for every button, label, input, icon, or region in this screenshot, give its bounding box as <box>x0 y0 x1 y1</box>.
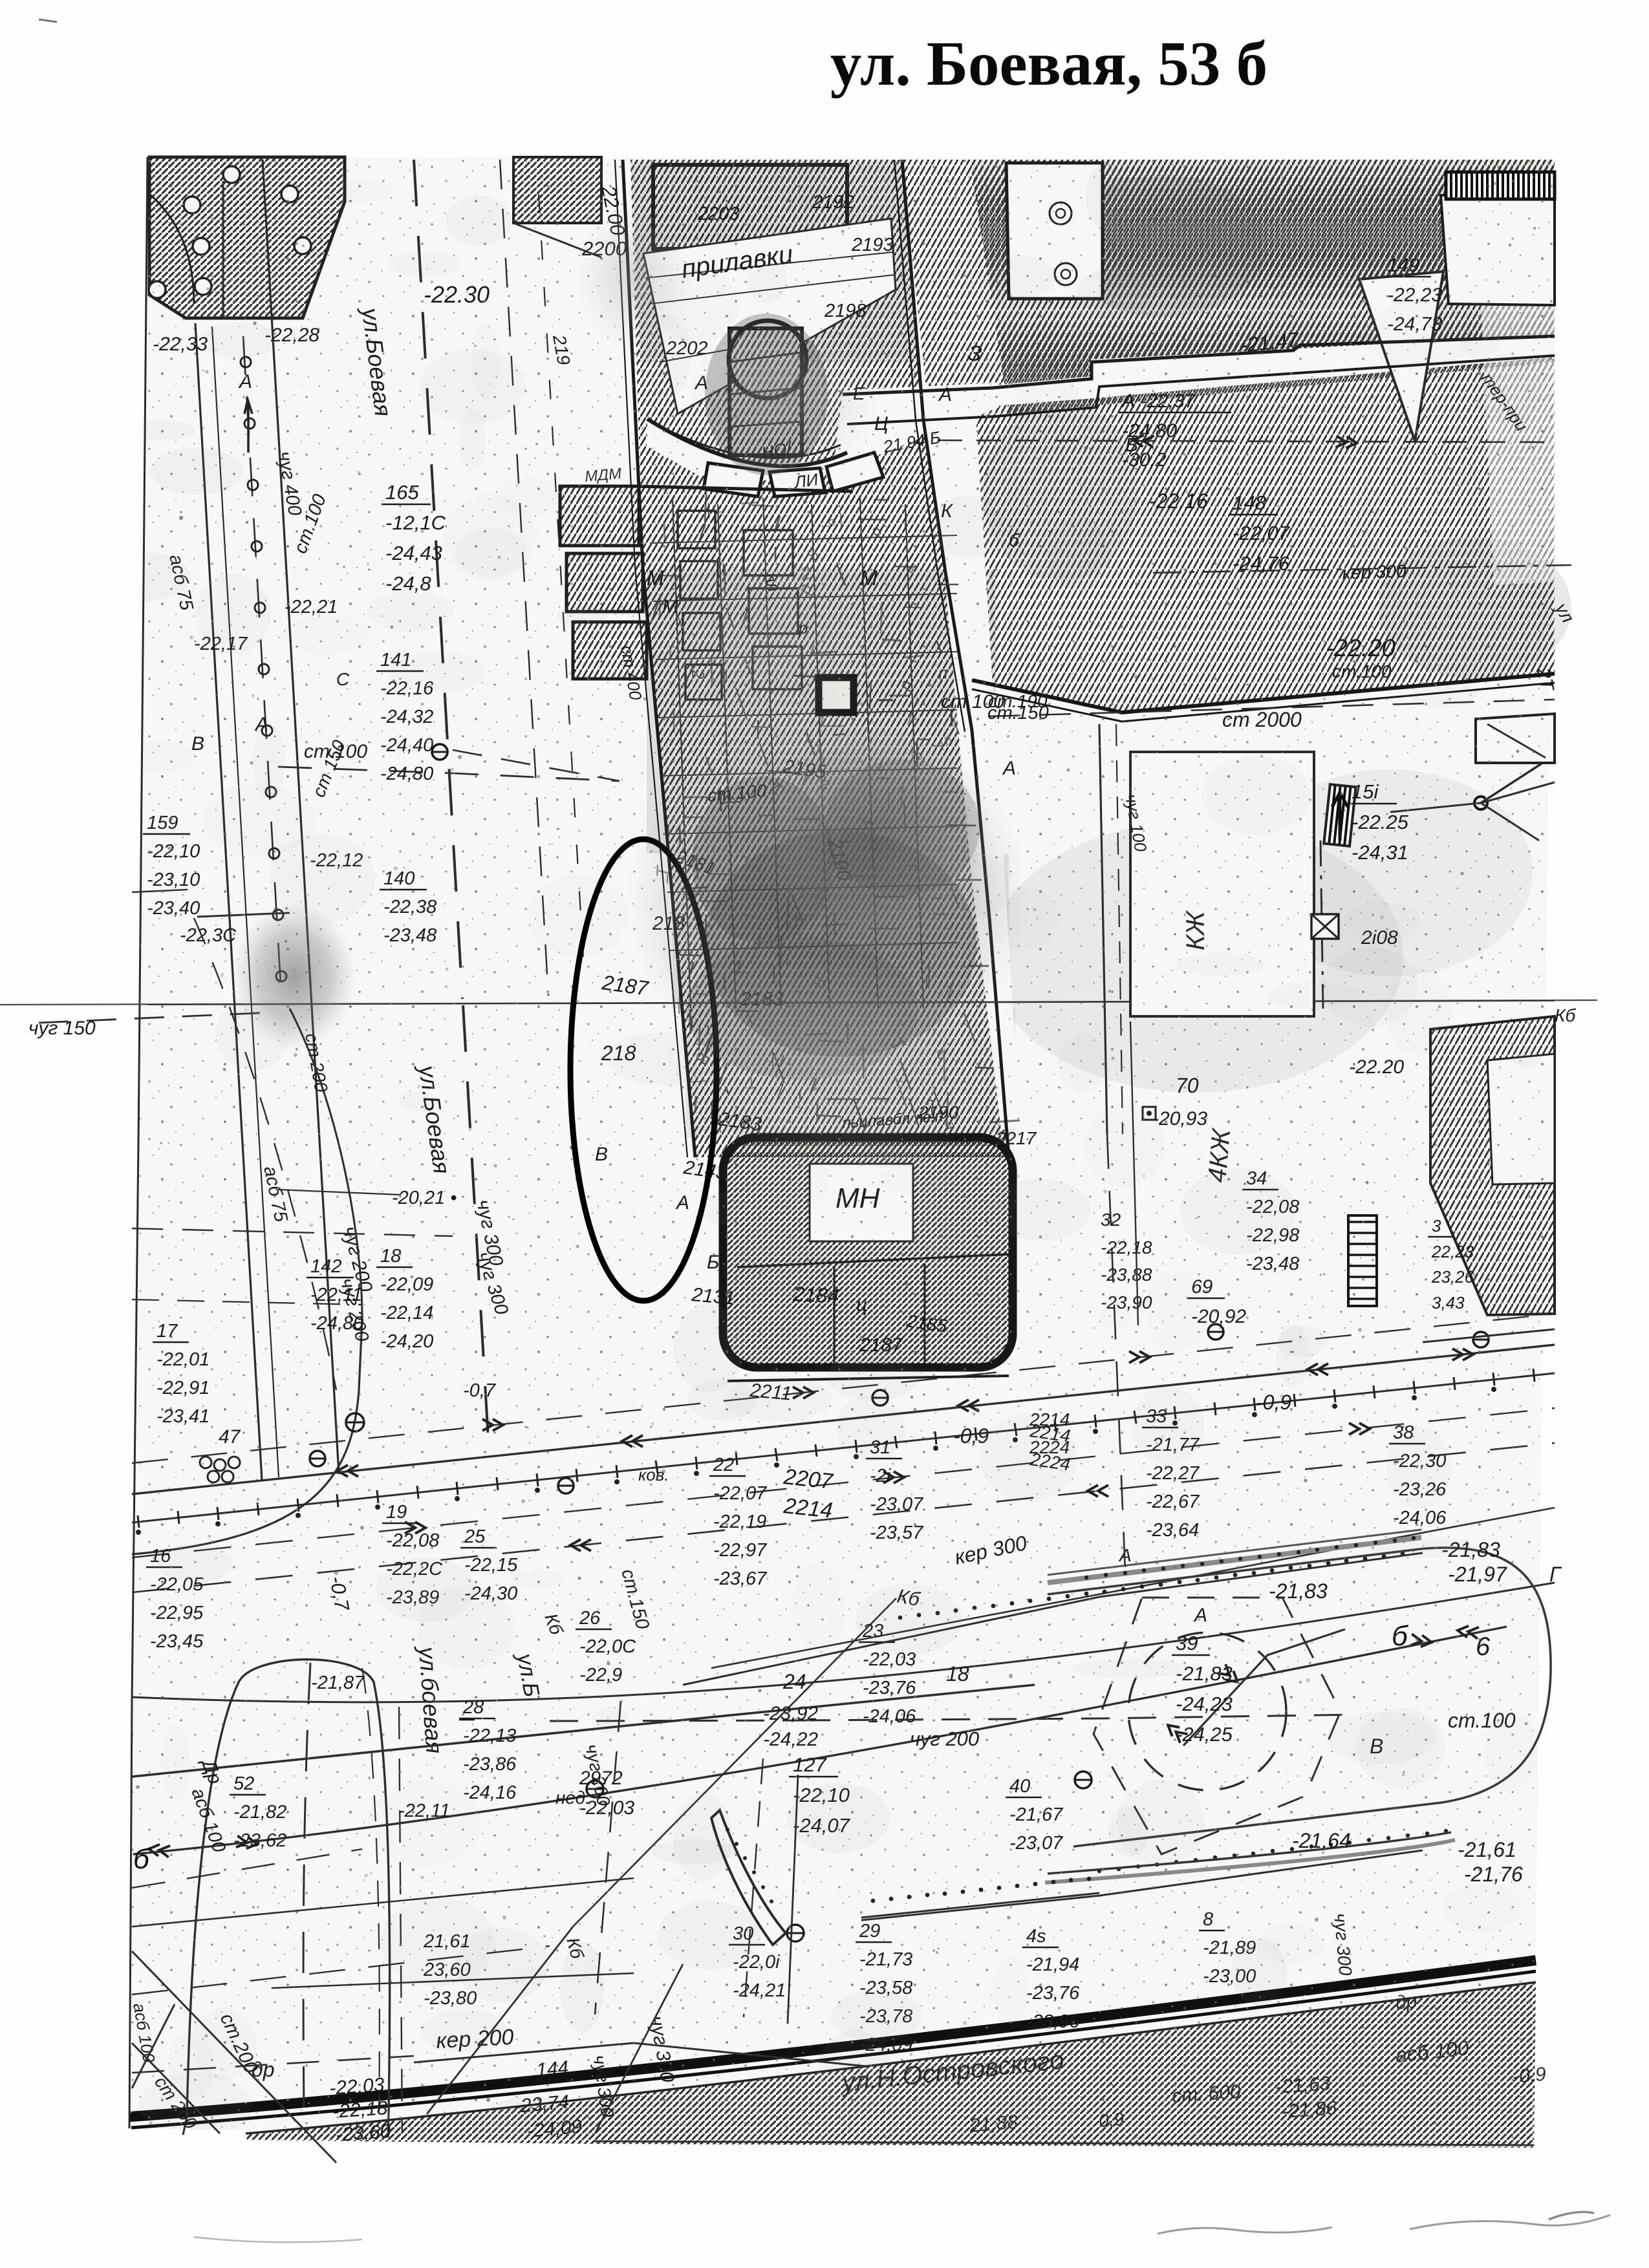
svg-text:Кб: Кб <box>1555 1005 1577 1025</box>
svg-text:чуг 150: чуг 150 <box>28 1018 96 1039</box>
svg-text:ул. Боевая, 53 б: ул. Боевая, 53 б <box>830 29 1267 98</box>
svg-text:Г: Г <box>1549 1563 1562 1586</box>
